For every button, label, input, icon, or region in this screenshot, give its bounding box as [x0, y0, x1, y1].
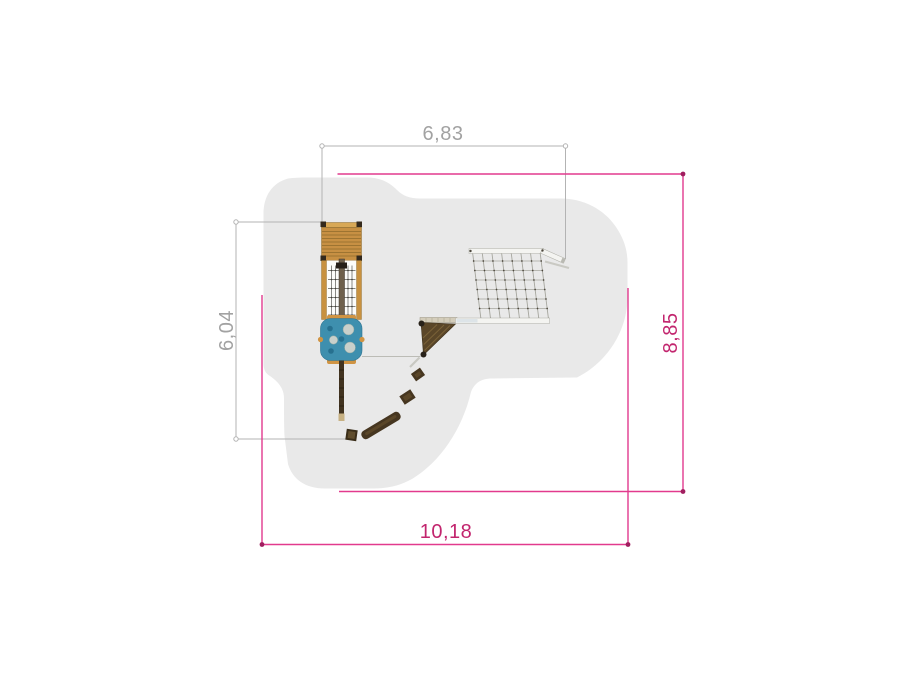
- playground-plan-page: 6,83 6,04: [0, 0, 900, 675]
- panel-hole: [329, 336, 337, 344]
- triangle-post: [421, 352, 427, 358]
- corner-post: [357, 256, 363, 262]
- side-rail-right: [357, 261, 362, 320]
- climbing-rope: [339, 361, 345, 422]
- dimension-endpoint: [563, 144, 567, 148]
- corner-post: [357, 222, 363, 228]
- blue-play-panel: [318, 315, 365, 364]
- dimension-dot: [681, 172, 686, 177]
- safety-area-width-label: 10,18: [420, 521, 473, 543]
- triangle-post: [419, 321, 425, 327]
- rope-tip: [339, 414, 345, 422]
- tower-platform: [321, 222, 363, 262]
- panel-grip: [327, 326, 333, 332]
- dimension-endpoint: [320, 144, 324, 148]
- dimension-dot: [681, 489, 686, 494]
- playground-plan-svg: 6,83 6,04: [0, 0, 900, 675]
- panel-grip: [328, 348, 334, 354]
- panel-notch: [359, 337, 364, 342]
- side-rail-left: [322, 261, 327, 320]
- rail-bolt: [541, 249, 543, 251]
- corner-post: [321, 222, 327, 228]
- pole-cap: [336, 263, 347, 269]
- equipment-width-label: 6,83: [423, 123, 464, 145]
- corner-post: [321, 256, 327, 262]
- step-stump: [345, 429, 357, 441]
- panel-notch: [318, 337, 323, 342]
- safety-area-height-label: 8,85: [660, 313, 682, 354]
- dimension-endpoint: [234, 220, 238, 224]
- net-top-rail: [469, 249, 544, 254]
- platform-top-rail: [322, 223, 362, 228]
- dimension-dot: [260, 542, 265, 547]
- dimension-dot: [626, 542, 631, 547]
- equipment-depth-label: 6,04: [216, 310, 238, 351]
- panel-hole: [343, 324, 354, 335]
- triangle-top-bar: [420, 318, 457, 323]
- panel-grip: [339, 336, 345, 342]
- rail-bolt: [469, 250, 471, 252]
- net-bottom-rail-fitting: [457, 319, 478, 323]
- panel-hole: [345, 342, 356, 353]
- dimension-endpoint: [234, 437, 238, 441]
